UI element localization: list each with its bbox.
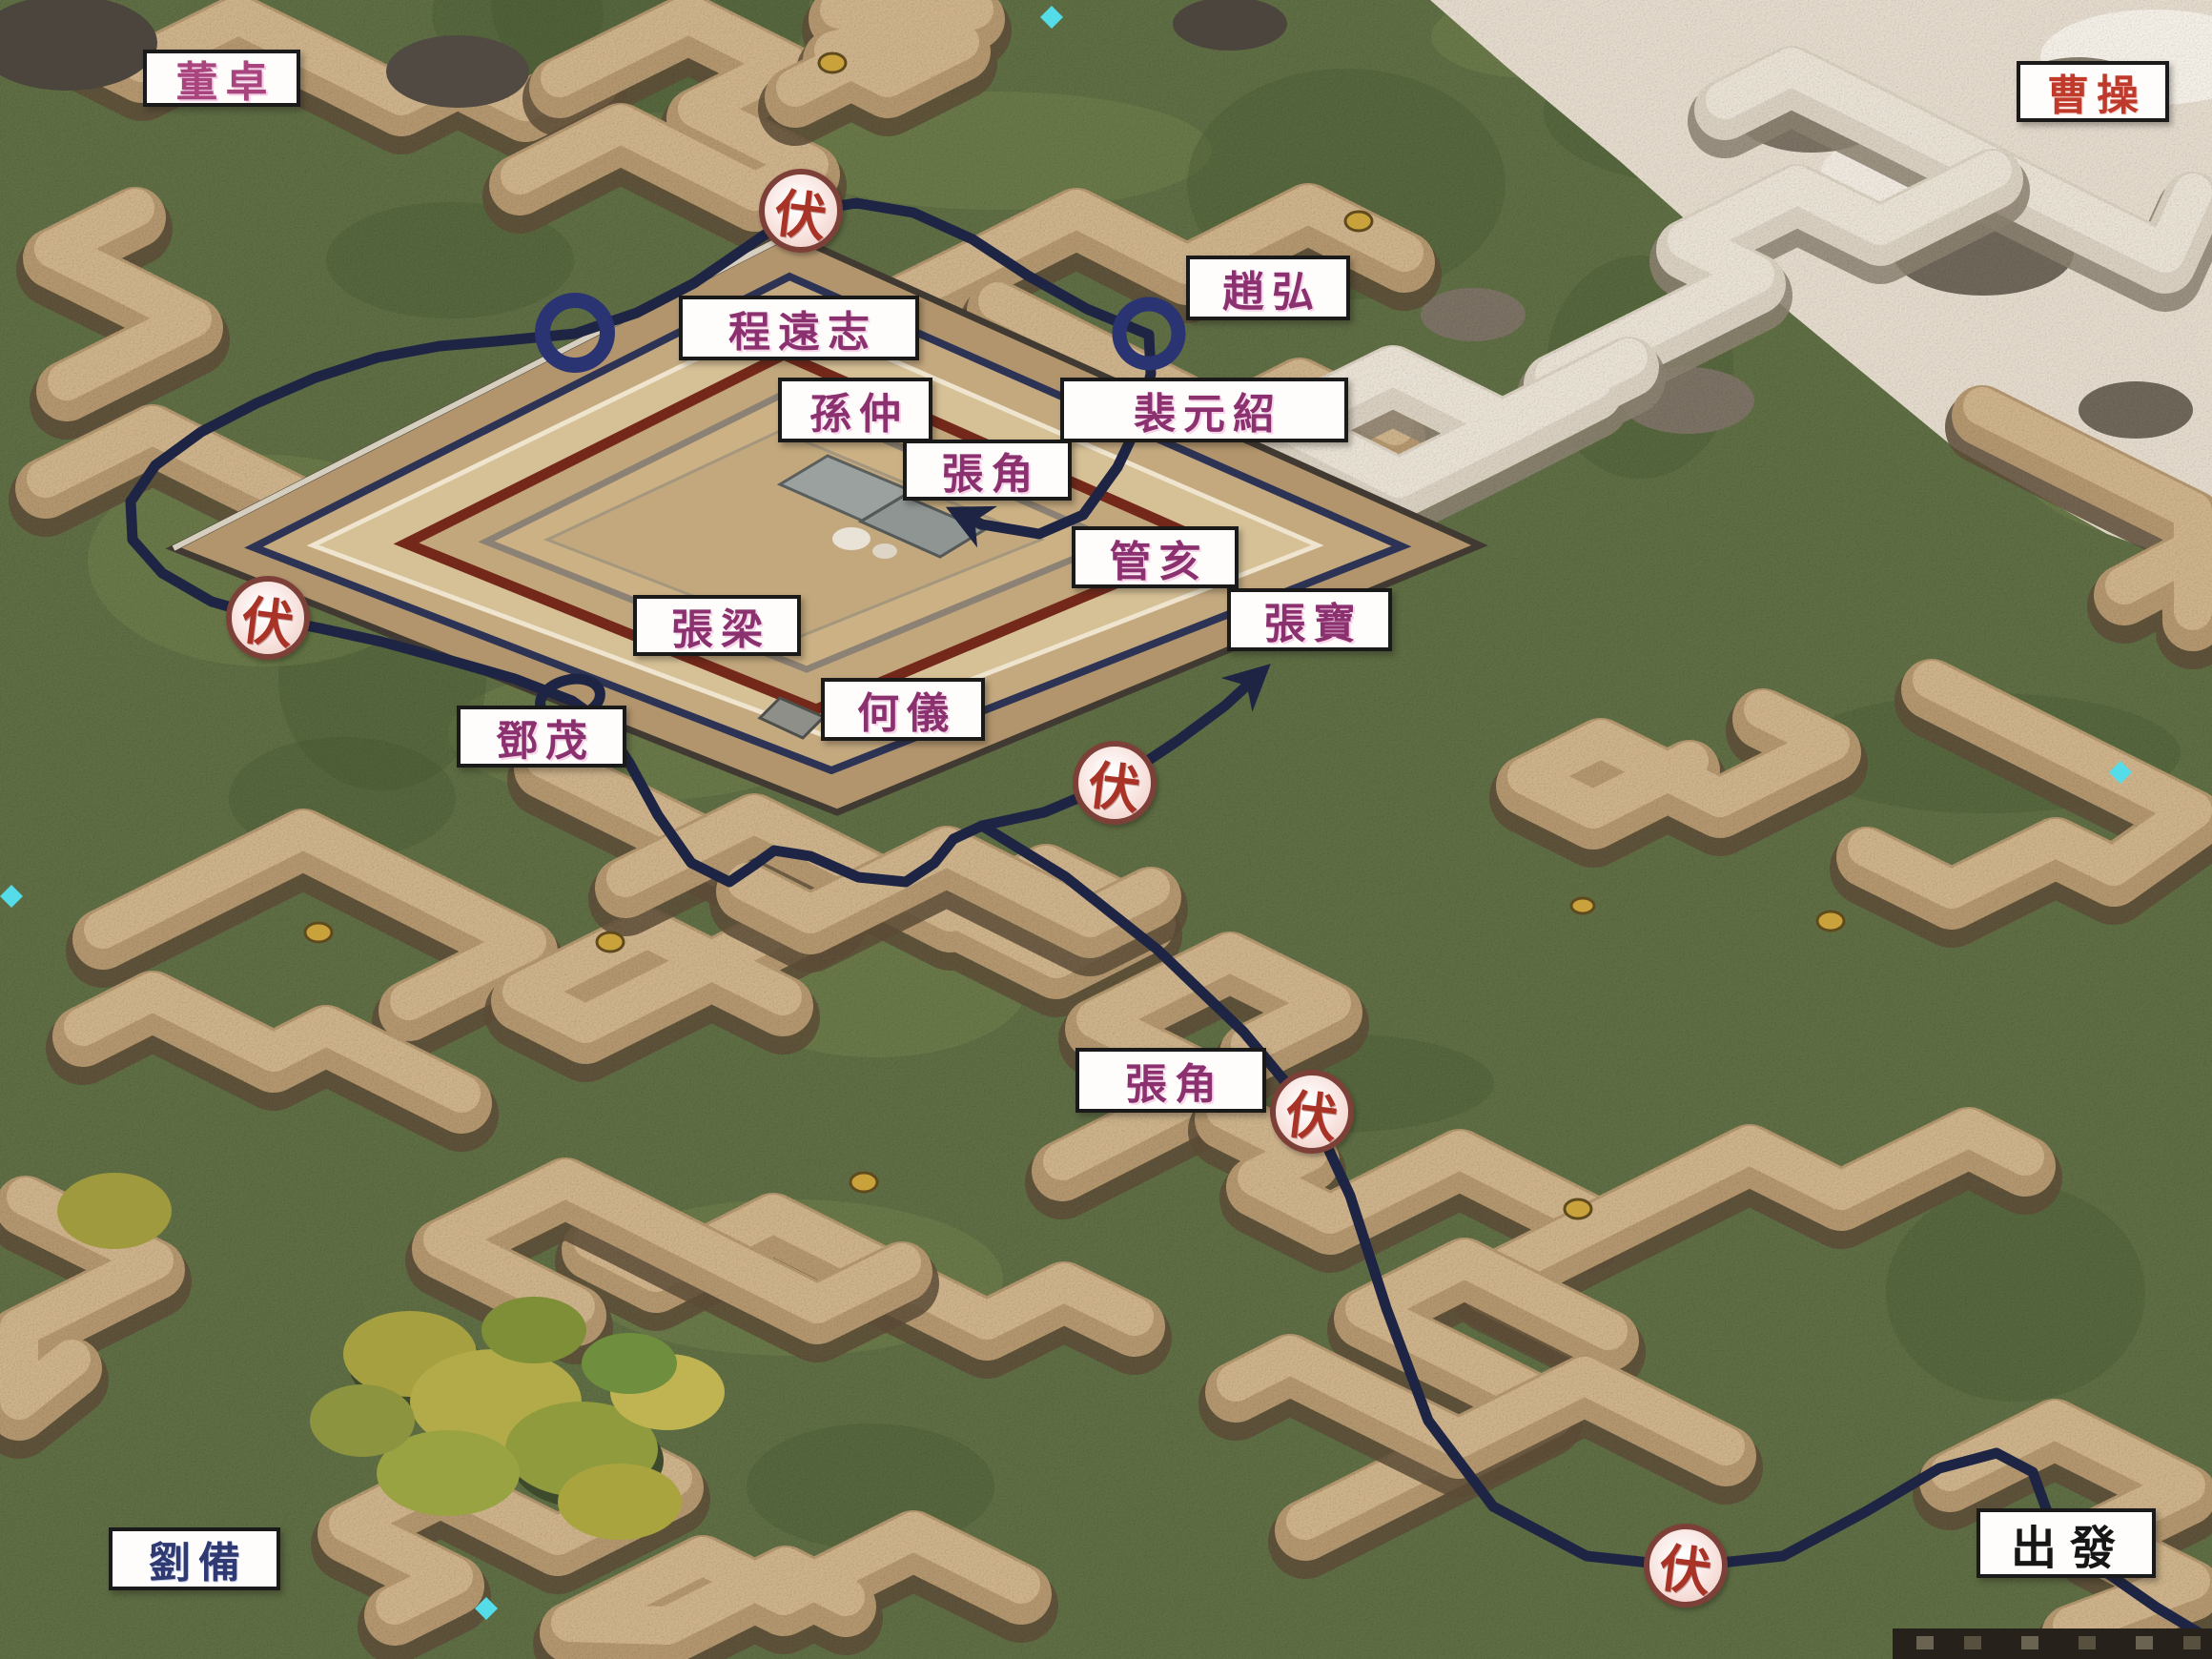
courtyard-rubble-2 [872, 543, 897, 559]
officer-label-he-yi: 何儀 [821, 678, 985, 741]
officer-label-deng-mao: 鄧茂 [457, 706, 626, 768]
ambush-char: 伏 [237, 578, 297, 659]
officer-label-sun-zhong: 孫仲 [778, 378, 932, 442]
officer-label-guan-hai: 管亥 [1072, 526, 1239, 588]
ambush-marker-center: 伏 [1073, 741, 1157, 825]
faction-label-liu-bei: 劉備 [109, 1527, 280, 1590]
ambush-char: 伏 [1655, 1526, 1715, 1607]
route-start-label: 出發 [1976, 1508, 2156, 1578]
ambush-char: 伏 [1084, 743, 1144, 824]
officer-label-pei-yuanshao: 裴元紹 [1060, 378, 1348, 442]
officer-label-zhang-jiao-fortress: 張角 [903, 440, 1072, 501]
officer-label-cheng-yuanzhi: 程遠志 [679, 296, 919, 360]
ambush-marker-north: 伏 [759, 169, 843, 253]
officer-label-zhang-liang: 張梁 [633, 595, 801, 656]
map-edge-strip [1893, 1628, 2212, 1659]
game-map-canvas[interactable]: 董卓 曹操 劉備 出發 程遠志 趙弘 孫仲 裴元紹 張角 管亥 張梁 張寶 何儀… [0, 0, 2212, 1659]
officer-label-zhang-bao: 張寶 [1227, 588, 1392, 651]
ambush-char: 伏 [770, 171, 830, 252]
faction-label-dong-zhuo: 董卓 [143, 50, 300, 107]
officer-label-zhao-hong: 趙弘 [1186, 256, 1350, 320]
ambush-char: 伏 [1281, 1072, 1342, 1153]
terrain-layer [0, 0, 2212, 1659]
officer-label-zhang-jiao-route: 張角 [1075, 1048, 1266, 1113]
courtyard-rubble [832, 527, 870, 550]
ambush-marker-mid-route: 伏 [1270, 1070, 1354, 1154]
ambush-marker-south: 伏 [1644, 1524, 1728, 1608]
faction-label-cao-cao: 曹操 [2017, 61, 2169, 122]
ambush-marker-west: 伏 [226, 576, 310, 660]
